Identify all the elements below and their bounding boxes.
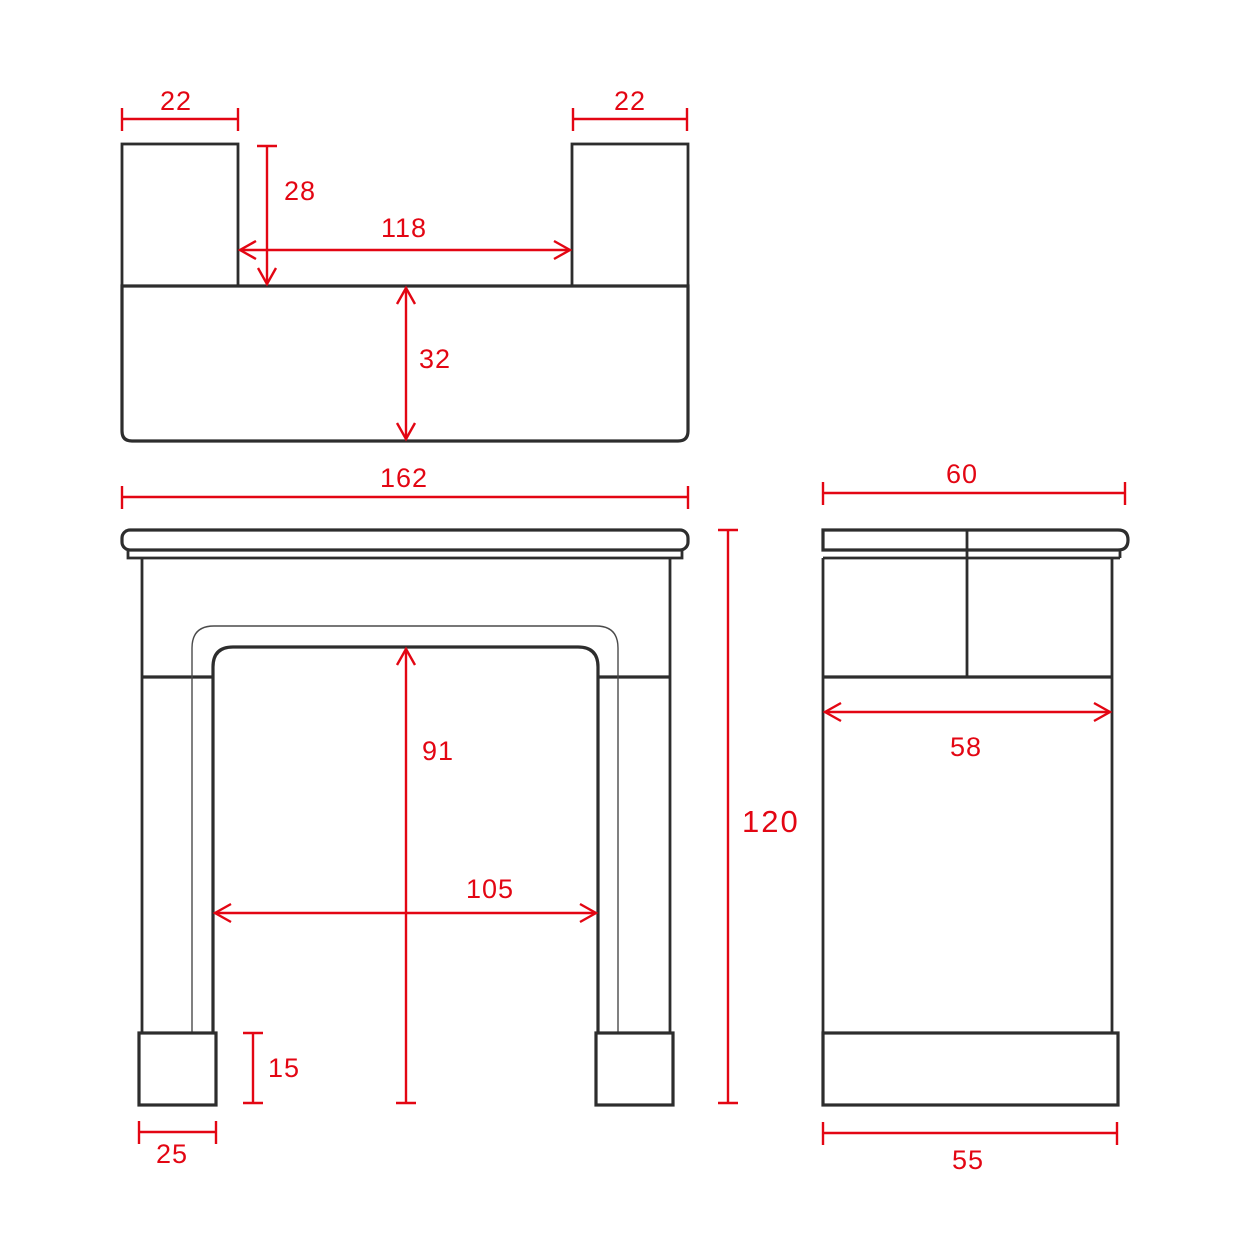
plan-dim-inner-width: 118 [240, 213, 570, 259]
plan-dim-leg-depth: 28 [257, 146, 316, 284]
front-dim-overall-height: 120 [718, 530, 800, 1103]
plan-dim-left-leg-width: 22 [122, 86, 238, 131]
plan-dim-right-leg-width: 22 [573, 86, 687, 131]
dimension-label: 60 [946, 459, 978, 489]
fireplace-dimension-drawing: 22 22 28 118 32 [0, 0, 1250, 1250]
front-right-foot-block [596, 1033, 673, 1105]
dimension-label: 15 [268, 1053, 300, 1083]
side-shelf-outline [823, 530, 1128, 550]
dimension-label: 25 [156, 1139, 188, 1169]
dimension-label: 91 [422, 736, 454, 766]
front-elevation: 162 120 91 105 15 [122, 463, 800, 1169]
side-dim-plinth-depth: 55 [823, 1122, 1117, 1175]
dimension-label: 28 [284, 176, 316, 206]
side-dim-body-depth: 58 [825, 703, 1110, 762]
dimension-label: 22 [614, 86, 646, 116]
front-shelf-outline [122, 530, 688, 550]
plan-left-leg-outline [122, 144, 238, 286]
dimension-label: 162 [380, 463, 428, 493]
front-dim-opening-height: 91 [396, 649, 454, 1103]
dimension-label: 32 [419, 344, 451, 374]
dimension-label: 22 [160, 86, 192, 116]
dimension-label: 118 [381, 213, 427, 243]
side-elevation: 60 58 55 [823, 459, 1128, 1175]
front-dim-plinth-width: 25 [139, 1121, 216, 1169]
dimension-label: 58 [950, 732, 982, 762]
plan-view: 22 22 28 118 32 [122, 86, 688, 441]
front-dim-overall-width: 162 [122, 463, 688, 509]
plan-dim-shelf-depth: 32 [397, 288, 451, 439]
technical-drawing-page: 22 22 28 118 32 [0, 0, 1250, 1250]
side-dim-shelf-depth: 60 [823, 459, 1125, 505]
front-dim-plinth-height: 15 [243, 1033, 300, 1103]
dimension-label: 55 [952, 1145, 984, 1175]
plan-right-leg-outline [572, 144, 688, 286]
dimension-label: 105 [466, 874, 514, 904]
side-foot-block [823, 1033, 1118, 1105]
front-left-foot-block [139, 1033, 216, 1105]
dimension-label: 120 [742, 804, 800, 839]
